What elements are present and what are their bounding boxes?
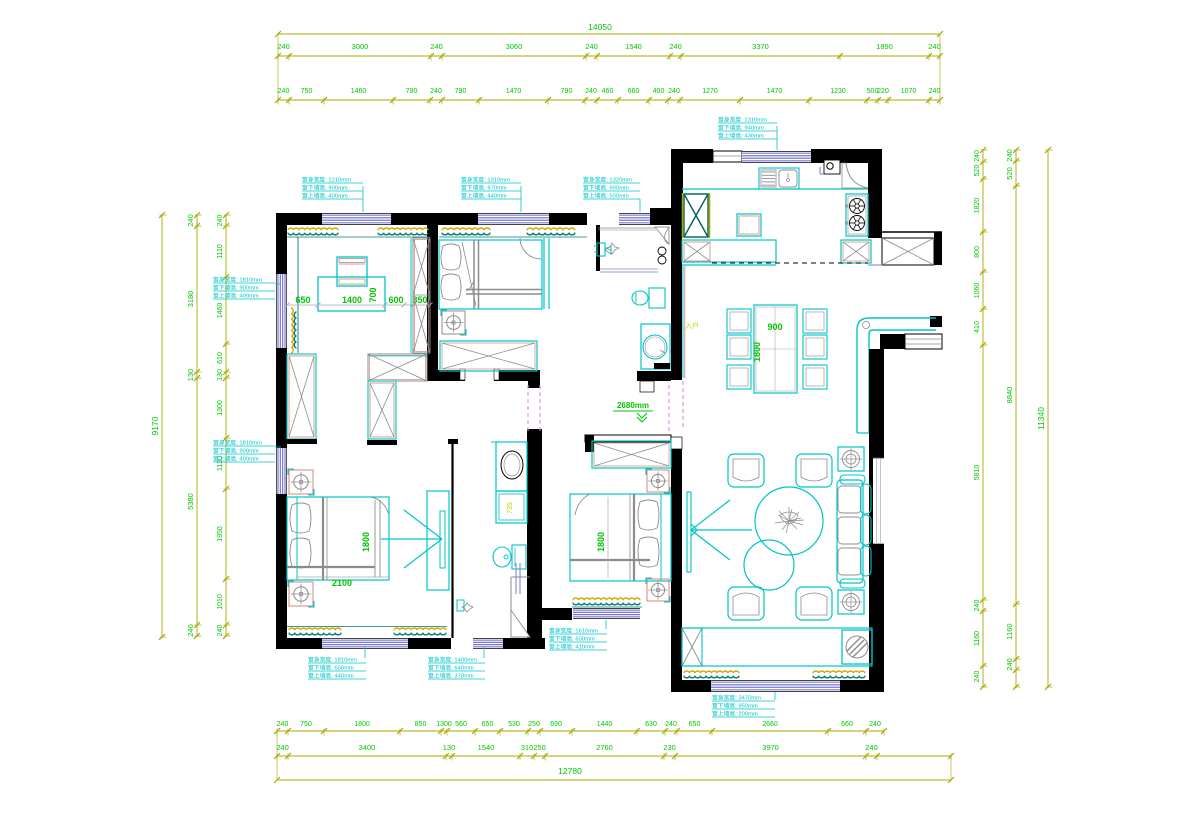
svg-text:2760: 2760 xyxy=(596,743,613,752)
svg-text:240: 240 xyxy=(430,42,443,51)
svg-text:1800: 1800 xyxy=(361,532,371,552)
svg-text:1460: 1460 xyxy=(217,303,224,319)
svg-text:240: 240 xyxy=(1005,149,1014,162)
svg-text:1800: 1800 xyxy=(752,342,762,362)
svg-text:窗身宽度: 1810mm: 窗身宽度: 1810mm xyxy=(308,656,357,664)
svg-text:1110: 1110 xyxy=(217,244,224,259)
svg-text:2680mm: 2680mm xyxy=(617,401,649,410)
svg-text:1800: 1800 xyxy=(596,532,606,552)
svg-text:窗身宽度: 3470mm: 窗身宽度: 3470mm xyxy=(712,694,761,702)
svg-text:2100: 2100 xyxy=(332,578,352,588)
svg-text:窗下墙高: 900mm: 窗下墙高: 900mm xyxy=(213,447,259,455)
svg-text:窗上墙高: 430mm: 窗上墙高: 430mm xyxy=(718,132,764,140)
svg-text:窗上墙高: 400mm: 窗上墙高: 400mm xyxy=(302,192,348,200)
svg-text:610: 610 xyxy=(217,352,224,364)
svg-text:窗下墙高: 600mm: 窗下墙高: 600mm xyxy=(549,635,595,643)
svg-text:650: 650 xyxy=(295,295,310,305)
svg-text:窗身宽度: 1810mm: 窗身宽度: 1810mm xyxy=(213,439,262,447)
svg-text:5380: 5380 xyxy=(186,493,195,510)
svg-text:240: 240 xyxy=(929,88,941,95)
svg-text:240: 240 xyxy=(217,625,224,637)
svg-text:1470: 1470 xyxy=(506,88,522,95)
svg-text:660: 660 xyxy=(628,88,640,95)
svg-text:窗上墙高: 410mm: 窗上墙高: 410mm xyxy=(549,643,595,651)
svg-text:240: 240 xyxy=(668,88,680,95)
svg-text:240: 240 xyxy=(1005,658,1014,671)
svg-text:5810: 5810 xyxy=(974,465,981,481)
svg-text:1300: 1300 xyxy=(217,400,224,416)
svg-text:3000: 3000 xyxy=(352,42,369,51)
svg-text:2660: 2660 xyxy=(762,721,778,728)
svg-text:790: 790 xyxy=(406,88,418,95)
svg-text:1160: 1160 xyxy=(1005,623,1014,639)
svg-text:660: 660 xyxy=(841,721,853,728)
svg-text:520: 520 xyxy=(974,165,981,177)
svg-text:窗身宽度: 1310mm: 窗身宽度: 1310mm xyxy=(461,176,510,184)
svg-text:130: 130 xyxy=(217,369,224,381)
svg-text:240: 240 xyxy=(276,743,289,752)
svg-text:130: 130 xyxy=(443,743,456,752)
svg-text:800: 800 xyxy=(974,246,981,258)
svg-text:850: 850 xyxy=(415,721,427,728)
svg-text:600: 600 xyxy=(388,295,403,305)
svg-text:9170: 9170 xyxy=(150,416,160,435)
svg-text:1800: 1800 xyxy=(354,721,370,728)
svg-text:520: 520 xyxy=(1005,167,1014,180)
svg-text:1460: 1460 xyxy=(351,88,367,95)
svg-text:230: 230 xyxy=(663,743,676,752)
svg-text:窗下墙高: 950mm: 窗下墙高: 950mm xyxy=(712,702,758,710)
svg-text:窗上墙高: 440mm: 窗上墙高: 440mm xyxy=(308,672,354,680)
svg-text:窗身宽度: 1210mm: 窗身宽度: 1210mm xyxy=(302,176,351,184)
svg-text:240: 240 xyxy=(974,150,981,162)
svg-text:240: 240 xyxy=(974,671,981,683)
svg-text:690: 690 xyxy=(550,721,562,728)
svg-text:窗上墙高: 400mm: 窗上墙高: 400mm xyxy=(213,455,259,463)
svg-text:240: 240 xyxy=(585,88,597,95)
svg-text:窗上墙高: 440mm: 窗上墙高: 440mm xyxy=(461,192,507,200)
svg-text:窗下墙高: 600mm: 窗下墙高: 600mm xyxy=(308,664,354,672)
svg-text:240: 240 xyxy=(669,42,682,51)
svg-text:3060: 3060 xyxy=(506,42,523,51)
svg-text:240: 240 xyxy=(278,88,290,95)
svg-text:12780: 12780 xyxy=(558,766,582,776)
svg-text:240: 240 xyxy=(665,721,677,728)
svg-text:310: 310 xyxy=(521,743,534,752)
svg-text:窗下墙高: 940mm: 窗下墙高: 940mm xyxy=(718,124,764,132)
svg-text:240: 240 xyxy=(865,743,878,752)
svg-text:240: 240 xyxy=(186,624,195,637)
svg-text:900: 900 xyxy=(767,322,782,332)
svg-text:8840: 8840 xyxy=(1005,387,1014,404)
svg-text:窗身宽度: 1810mm: 窗身宽度: 1810mm xyxy=(213,276,262,284)
svg-text:240: 240 xyxy=(430,88,442,95)
svg-text:1070: 1070 xyxy=(901,88,917,95)
svg-text:735: 735 xyxy=(507,502,514,514)
svg-text:1010: 1010 xyxy=(217,594,224,610)
svg-text:3970: 3970 xyxy=(762,743,779,752)
svg-text:250: 250 xyxy=(533,743,546,752)
svg-text:130: 130 xyxy=(186,369,195,382)
svg-text:1470: 1470 xyxy=(767,88,783,95)
svg-text:1540: 1540 xyxy=(478,743,495,752)
svg-text:窗下墙高: 900mm: 窗下墙高: 900mm xyxy=(583,184,629,192)
svg-text:790: 790 xyxy=(455,88,467,95)
svg-text:240: 240 xyxy=(869,721,881,728)
svg-text:窗下墙高: 900mm: 窗下墙高: 900mm xyxy=(302,184,348,192)
svg-text:410: 410 xyxy=(974,321,981,333)
svg-text:1540: 1540 xyxy=(625,42,642,51)
svg-text:窗上墙高: 200mm: 窗上墙高: 200mm xyxy=(712,710,758,718)
svg-text:790: 790 xyxy=(561,88,573,95)
svg-text:250: 250 xyxy=(528,721,540,728)
svg-text:240: 240 xyxy=(277,721,289,728)
svg-text:240: 240 xyxy=(217,215,224,227)
svg-text:1300: 1300 xyxy=(436,721,452,728)
svg-text:650: 650 xyxy=(689,721,701,728)
svg-text:240: 240 xyxy=(585,42,598,51)
svg-text:1820: 1820 xyxy=(974,198,981,214)
svg-text:560: 560 xyxy=(455,721,467,728)
svg-text:窗上墙高: 400mm: 窗上墙高: 400mm xyxy=(213,292,259,300)
svg-text:窗下墙高: 640mm: 窗下墙高: 640mm xyxy=(428,664,474,672)
svg-text:1060: 1060 xyxy=(974,283,981,299)
svg-text:240: 240 xyxy=(928,42,941,51)
svg-text:750: 750 xyxy=(301,88,313,95)
svg-text:窗身宽度: 1610mm: 窗身宽度: 1610mm xyxy=(549,627,598,635)
svg-text:240: 240 xyxy=(186,214,195,227)
svg-text:630: 630 xyxy=(645,721,657,728)
svg-text:220: 220 xyxy=(877,88,889,95)
svg-text:460: 460 xyxy=(602,88,614,95)
svg-text:240: 240 xyxy=(974,600,981,612)
svg-text:1440: 1440 xyxy=(597,721,613,728)
svg-text:700: 700 xyxy=(368,287,378,302)
svg-text:750: 750 xyxy=(300,721,312,728)
svg-text:1890: 1890 xyxy=(876,42,893,51)
svg-text:窗上墙高: 500mm: 窗上墙高: 500mm xyxy=(583,192,629,200)
svg-text:3370: 3370 xyxy=(752,42,769,51)
svg-text:3180: 3180 xyxy=(186,291,195,308)
svg-text:窗身宽度: 1320mm: 窗身宽度: 1320mm xyxy=(583,176,632,184)
svg-text:650: 650 xyxy=(482,721,494,728)
svg-text:530: 530 xyxy=(508,721,520,728)
svg-text:窗下墙高: 900mm: 窗下墙高: 900mm xyxy=(213,284,259,292)
svg-text:14050: 14050 xyxy=(588,22,612,32)
svg-text:11340: 11340 xyxy=(1036,407,1046,430)
svg-text:入户: 入户 xyxy=(685,321,699,330)
svg-text:240: 240 xyxy=(277,42,290,51)
svg-text:窗上墙高: 370mm: 窗上墙高: 370mm xyxy=(428,672,474,680)
svg-text:1160: 1160 xyxy=(974,631,981,646)
svg-text:3400: 3400 xyxy=(359,743,376,752)
svg-text:1400: 1400 xyxy=(342,295,362,305)
svg-text:1950: 1950 xyxy=(217,526,224,542)
svg-text:400: 400 xyxy=(653,88,665,95)
svg-text:1270: 1270 xyxy=(702,88,718,95)
svg-text:窗下墙高: 970mm: 窗下墙高: 970mm xyxy=(461,184,507,192)
svg-text:1230: 1230 xyxy=(830,88,846,95)
svg-text:窗身宽度: 1400mm: 窗身宽度: 1400mm xyxy=(428,656,477,664)
svg-text:窗身宽度: 1310mm: 窗身宽度: 1310mm xyxy=(718,116,767,124)
